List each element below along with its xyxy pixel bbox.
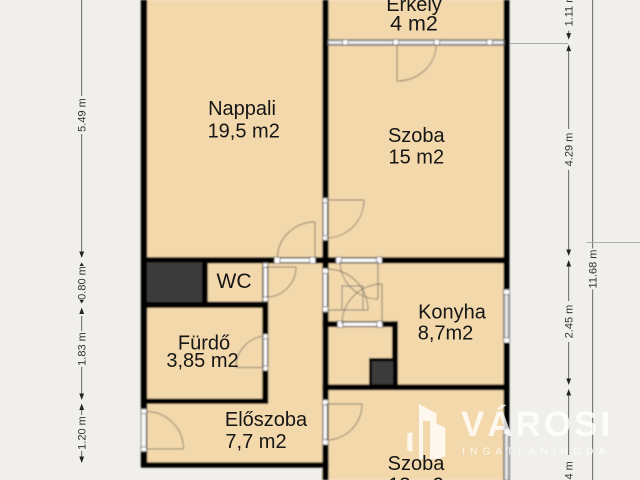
svg-text:7,7 m2: 7,7 m2 (225, 431, 286, 453)
svg-text:Szoba: Szoba (388, 125, 446, 147)
svg-text:WC: WC (217, 270, 252, 293)
svg-text:1.83 m: 1.83 m (76, 332, 88, 366)
svg-text:2.45 m: 2.45 m (563, 305, 575, 339)
svg-text:4.29 m: 4.29 m (563, 133, 575, 167)
svg-text:1.20 m: 1.20 m (76, 416, 88, 450)
svg-text:1.34 m: 1.34 m (563, 461, 575, 480)
svg-text:0.80 m: 0.80 m (76, 266, 88, 300)
svg-text:1.11 m: 1.11 m (563, 0, 575, 26)
svg-text:13 m2: 13 m2 (388, 475, 444, 480)
svg-text:5.49 m: 5.49 m (76, 98, 88, 132)
svg-text:Konyha: Konyha (418, 302, 487, 324)
svg-text:11.68 m: 11.68 m (587, 250, 599, 289)
svg-text:3,85 m2: 3,85 m2 (166, 350, 238, 372)
svg-text:4 m2: 4 m2 (390, 12, 438, 36)
svg-text:Előszoba: Előszoba (225, 409, 308, 431)
svg-text:VÁROSI: VÁROSI (461, 404, 613, 444)
svg-text:19,5 m2: 19,5 m2 (208, 121, 280, 143)
svg-text:15 m2: 15 m2 (389, 147, 445, 169)
svg-text:8,7m2: 8,7m2 (418, 323, 474, 345)
svg-text:INGATLANIRODA: INGATLANIRODA (462, 447, 611, 458)
svg-text:Nappali: Nappali (208, 98, 276, 120)
